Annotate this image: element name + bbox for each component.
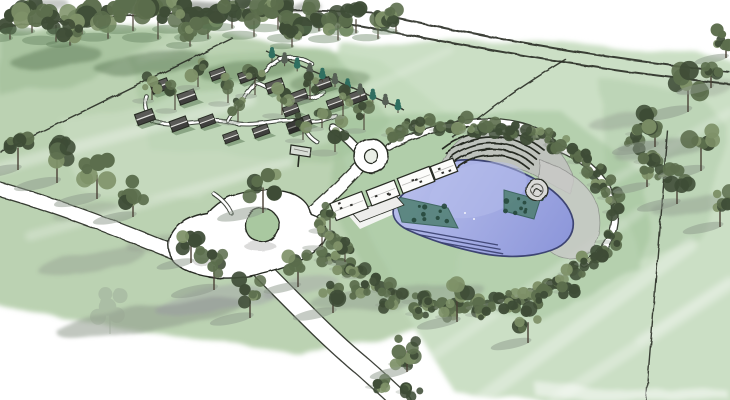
site-plan-illustration [0,0,730,400]
drop-off-loop [354,139,388,173]
splash-feature [526,179,548,201]
site-plan-canvas [0,0,730,400]
